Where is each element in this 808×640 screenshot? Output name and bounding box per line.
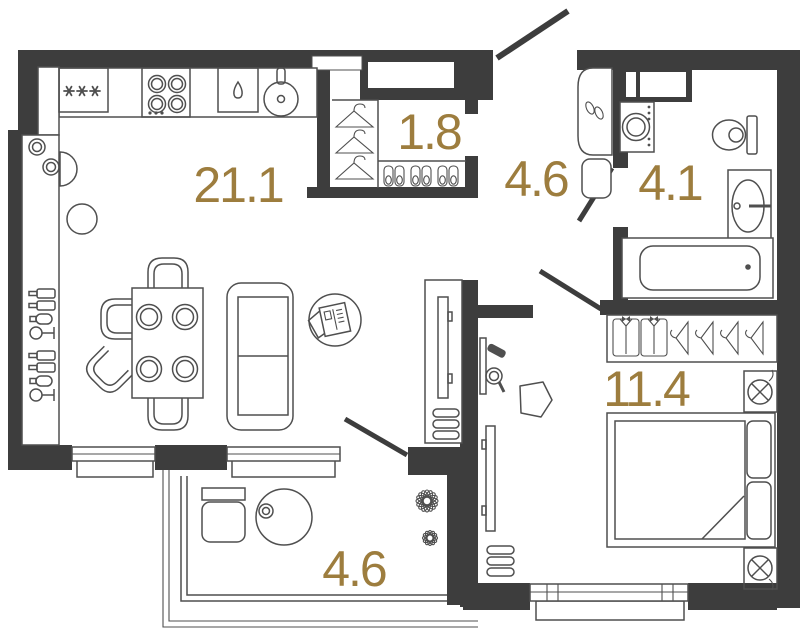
pouf	[582, 159, 611, 198]
washing-machine	[620, 102, 654, 152]
shaft-inset	[368, 62, 454, 88]
stool	[67, 204, 97, 234]
hallway-furniture	[578, 68, 612, 198]
balcony-furniture	[202, 488, 439, 546]
wall-vent-slot	[312, 56, 362, 70]
chair	[520, 382, 552, 417]
room-label-hallway: 4.6	[504, 151, 568, 207]
wall-left-lower	[8, 130, 23, 470]
hanger-icon	[336, 130, 373, 153]
bathtub	[622, 238, 773, 298]
hand-mirror-icon	[486, 368, 504, 392]
wall-closet-left	[317, 67, 330, 192]
bedroom-furniture	[480, 315, 777, 590]
balcony-glazing-outer	[181, 476, 447, 601]
counter-top-run	[59, 68, 317, 117]
hanger-icon	[336, 104, 373, 127]
room-label-bathroom: 4.1	[638, 155, 702, 211]
balcony-chair	[202, 488, 245, 542]
dining-chair	[148, 258, 188, 290]
lamp-icon	[748, 370, 773, 404]
wall-bedroom-stub	[478, 305, 533, 318]
window-sill	[232, 460, 335, 477]
hairdryer-icon	[486, 343, 507, 359]
wall-left-upper	[18, 50, 38, 138]
wall-bottom-seg-b	[155, 445, 227, 470]
plant-icon	[415, 489, 438, 512]
wall-closet-bottom	[307, 187, 473, 198]
room-label-living-kitchen: 21.1	[193, 157, 283, 213]
plant-icon	[422, 530, 438, 546]
living-tv-unit	[425, 280, 462, 443]
balcony-table	[256, 489, 312, 545]
nightstand	[744, 370, 777, 412]
entry-door-leaf	[497, 11, 568, 58]
wall-bottom-seg-a	[8, 445, 72, 470]
dining-table	[132, 288, 203, 398]
room-label-bedroom: 11.4	[603, 361, 690, 417]
closet-partition	[332, 100, 378, 188]
counter-left-upper	[38, 67, 59, 135]
room-label-closet: 1.8	[397, 104, 461, 160]
slippers-icon	[384, 166, 458, 186]
dining-chair	[82, 346, 133, 397]
wall-closet-right-lower	[465, 156, 478, 198]
radiator	[487, 546, 514, 576]
side-table	[306, 294, 361, 346]
wall-right-outer	[777, 50, 800, 608]
toilet	[713, 116, 758, 154]
wall-closet-right-upper	[465, 100, 478, 114]
hanger-icon	[336, 156, 373, 179]
floor-plan: 21.1 1.8 4.6 4.1 11.4 4.6	[0, 0, 808, 640]
dressing-area	[480, 338, 552, 417]
balcony-door-leaf	[345, 419, 407, 455]
wall-shelf	[480, 338, 486, 394]
window-sill	[77, 460, 153, 477]
balcony-glazing-inner	[187, 476, 447, 595]
wall-table-half-round	[60, 152, 77, 186]
room-label-balcony: 4.6	[322, 541, 386, 597]
dining-chair	[101, 299, 133, 339]
bedroom-tv	[482, 426, 514, 576]
drain	[745, 264, 751, 270]
bathroom-sink	[728, 170, 771, 243]
bedroom-door-leaf	[540, 271, 601, 309]
double-bed	[607, 413, 775, 547]
dining-set	[82, 258, 203, 430]
floor-plan-drawing: 21.1 1.8 4.6 4.1 11.4 4.6	[0, 0, 808, 640]
dining-chair	[148, 398, 188, 430]
wardrobe	[607, 315, 777, 362]
sofa	[227, 283, 293, 430]
window-sill	[536, 601, 684, 620]
wall-bedroom-top	[600, 300, 777, 315]
wall-cabinet	[618, 66, 692, 102]
tv-icon	[486, 426, 495, 531]
